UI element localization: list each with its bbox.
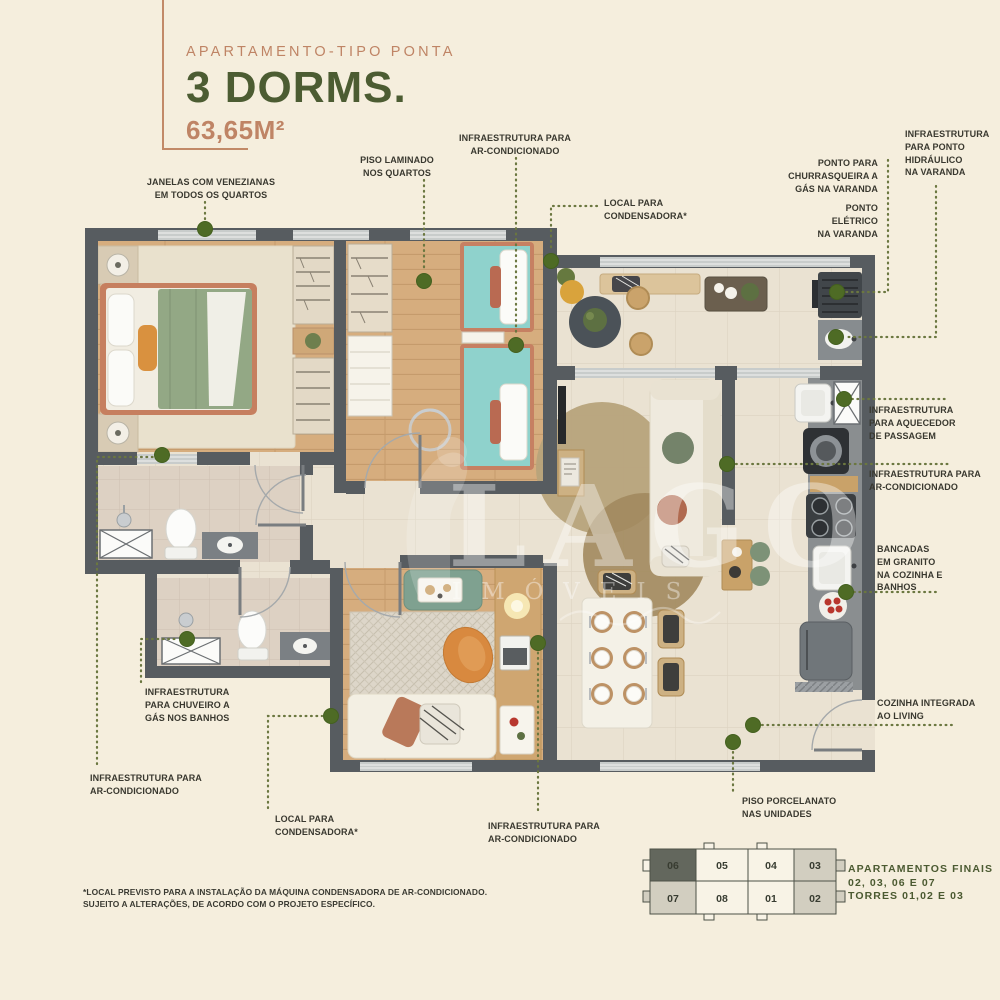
callout-infra-ar-top: INFRAESTRUTURA PARA AR-CONDICIONADO — [459, 132, 571, 158]
page-title: 3 DORMS. — [186, 63, 456, 113]
callout-piso-porcelanato: PISO PORCELANATO NAS UNIDADES — [742, 795, 836, 821]
keyplan-unit-label: 03 — [809, 860, 821, 872]
keyplan-unit-label: 07 — [667, 893, 679, 905]
callout-infra-ar-left: INFRAESTRUTURA PARA AR-CONDICIONADO — [90, 772, 202, 798]
callout-cozinha-integrada: COZINHA INTEGRADA AO LIVING — [877, 697, 975, 723]
callout-piso-laminado: PISO LAMINADO NOS QUARTOS — [360, 154, 434, 180]
apartment-type-kicker: APARTAMENTO-TIPO PONTA — [186, 44, 456, 60]
keyplan-unit-label: 01 — [765, 893, 777, 905]
keyplan-caption: APARTAMENTOS FINAIS 02, 03, 06 E 07 TORR… — [848, 863, 993, 904]
callout-janelas-venezianas: JANELAS COM VENEZIANAS EM TODOS OS QUART… — [147, 176, 275, 202]
keyplan-unit-label: 04 — [765, 860, 777, 872]
keyplan: 06 05 04 03 07 08 01 02 — [643, 843, 845, 920]
callout-infra-ar-right: INFRAESTRUTURA PARA AR-CONDICIONADO — [869, 468, 981, 494]
floorplan-sheet: LAGO IMÓVEIS — [0, 0, 1000, 1000]
callout-ponto-hidraulico: INFRAESTRUTURA PARA PONTO HIDRÁULICO NA … — [905, 128, 989, 179]
area-value: 63,65M² — [186, 115, 456, 146]
callout-ponto-eletrico: PONTO ELÉTRICO NA VARANDA — [818, 202, 879, 240]
watermark-subtitle: IMÓVEIS — [452, 578, 701, 605]
title-block: APARTAMENTO-TIPO PONTA 3 DORMS. 63,65M² — [186, 44, 456, 146]
keyplan-unit-label: 05 — [716, 860, 728, 872]
keyplan-unit-label: 02 — [809, 893, 821, 905]
callout-bancadas: BANCADAS EM GRANITO NA COZINHA E BANHOS — [877, 543, 943, 594]
callout-aquecedor: INFRAESTRUTURA PARA AQUECEDOR DE PASSAGE… — [869, 404, 956, 442]
callout-local-condensadora-top: LOCAL PARA CONDENSADORA* — [604, 197, 687, 223]
keyplan-unit-label: 08 — [716, 893, 728, 905]
master-bedroom — [98, 246, 334, 452]
keyplan-unit-label: 06 — [667, 860, 679, 872]
callout-churrasqueira: PONTO PARA CHURRASQUEIRA A GÁS NA VARAND… — [788, 157, 878, 195]
callout-chuveiro-gas: INFRAESTRUTURA PARA CHUVEIRO A GÁS NOS B… — [145, 686, 230, 724]
callout-local-condensadora-bottom: LOCAL PARA CONDENSADORA* — [275, 813, 358, 839]
footnote: *LOCAL PREVISTO PARA A INSTALAÇÃO DA MÁQ… — [83, 887, 487, 910]
callout-infra-ar-bottom: INFRAESTRUTURA PARA AR-CONDICIONADO — [488, 820, 600, 846]
watermark-title: LAGO — [448, 462, 879, 593]
